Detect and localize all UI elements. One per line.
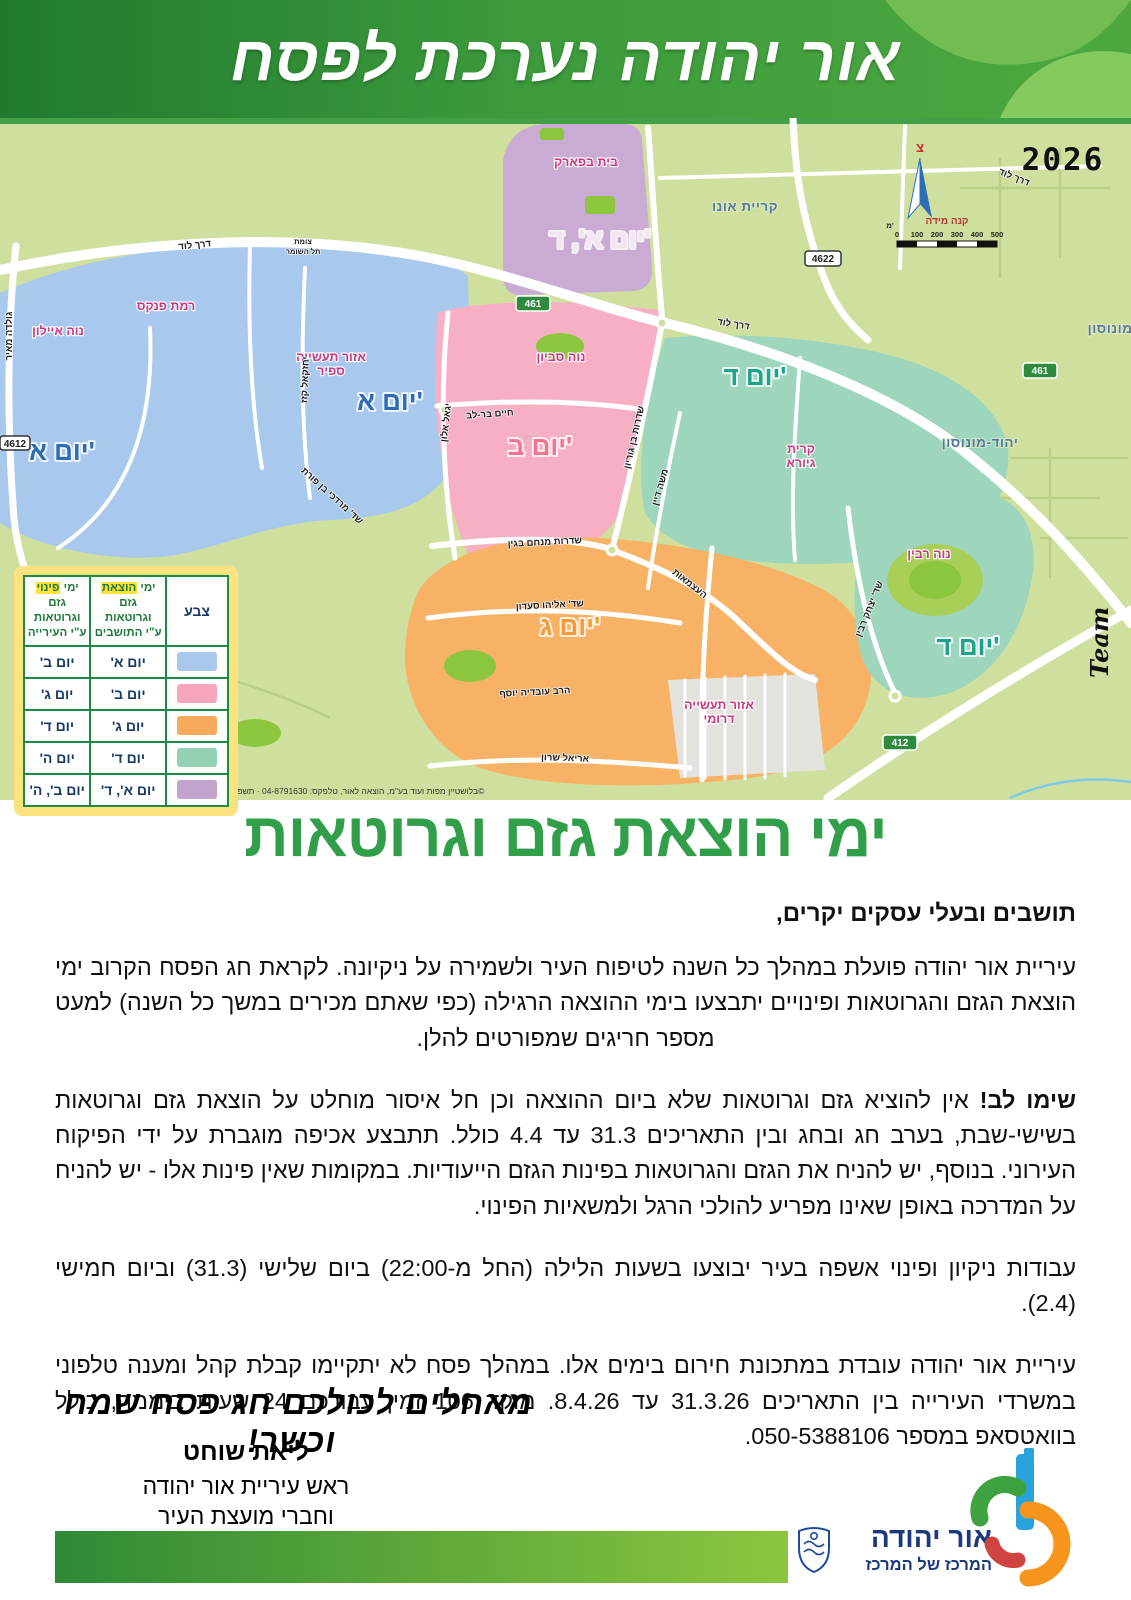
legend-swatch-blue [177, 652, 217, 671]
zone-label-blue-west: יום א' [29, 436, 95, 466]
zone-label-blue-east: יום א' [357, 386, 423, 416]
neighborhood-beit-bapark: בית בפארק [554, 155, 618, 169]
section-title: ימי הוצאת גזם וגרוטאות [0, 800, 1131, 871]
city-map: יום א' יום א' יום א', ד' יום ב' יום ד' י… [0, 118, 1131, 800]
neighborhood-saphir-2: ספיר [317, 364, 345, 378]
svg-text:מ': מ' [886, 221, 893, 230]
street-label-ariel-sharon: אריאל שרון [541, 752, 590, 765]
svg-text:4612: 4612 [4, 439, 27, 450]
legend-header-resident: ימי הוצאת גזם וגרוטאות ע"י התושבים [90, 576, 166, 646]
neighborhood-neve-rabin: נוה רבין [907, 547, 950, 561]
route-badge-461-east: 461 [1023, 363, 1057, 378]
svg-text:300: 300 [951, 230, 964, 239]
city-logo: אור יהודה המרכז של המרכז [796, 1524, 992, 1575]
svg-text:500: 500 [991, 230, 1004, 239]
legend-row: יום א'יום ב' [24, 646, 228, 678]
zone-label-orange: יום ג' [540, 611, 600, 641]
legend-table: צבע ימי הוצאת גזם וגרוטאות ע"י התושבים י… [23, 575, 229, 807]
legend-swatch-teal [177, 748, 217, 767]
legend-header-city: ימי פינוי גזם וגרוטאות ע"י העירייה [24, 576, 90, 646]
legend-header-color: צבע [166, 576, 228, 646]
city-crest-icon [796, 1524, 832, 1574]
body-paragraph-3: עבודות ניקיון ופינוי אשפה בעיר יבוצעו בש… [55, 1251, 1076, 1322]
svg-text:412: 412 [892, 738, 909, 749]
zone-label-purple: יום א', ד' [549, 224, 650, 254]
zone-purple [503, 124, 652, 295]
body-paragraph-1: עיריית אור יהודה פועלת במהלך כל השנה לטי… [55, 950, 1076, 1056]
signature-block: ליאת שוחט ראש עיריית אור יהודה וחברי מוע… [116, 1438, 376, 1532]
map-credit-line: ©בלושטיין מפות ועוד בע"מ, הוצאה לאור, טל… [206, 786, 485, 796]
signer-role-2: וחברי מועצת העיר [116, 1502, 376, 1532]
zone-label-teal-south: יום ד' [937, 631, 1000, 661]
route-badge-4622: 4622 [805, 251, 841, 266]
svg-text:461: 461 [1032, 366, 1049, 377]
page-title: אור יהודה נערכת לפסח [0, 0, 1131, 118]
junction-label-2: תל השומר [286, 247, 321, 256]
footer-green-bar [55, 1531, 788, 1583]
city-label-yehud-south: יהוד-מונוסון [942, 435, 1019, 450]
watermark-text: Team [1085, 607, 1114, 678]
svg-text:461: 461 [525, 299, 542, 310]
svg-text:צ: צ [916, 140, 924, 155]
route-badge-4612: 4612 [0, 436, 30, 450]
legend-row: יום ג'יום ד' [24, 710, 228, 742]
header-banner: אור יהודה נערכת לפסח [0, 0, 1131, 118]
legend-swatch-orange [177, 716, 217, 735]
neighborhood-giora-2: גיורא [786, 456, 815, 470]
legend-row: יום ב'יום ג' [24, 678, 228, 710]
route-badge-412: 412 [883, 735, 917, 750]
svg-text:4622: 4622 [812, 254, 835, 265]
legend-swatch-pink [177, 684, 217, 703]
svg-text:400: 400 [971, 230, 984, 239]
neighborhood-southern-2: דרומי [703, 712, 734, 726]
neighborhood-giora-1: קרית [787, 442, 815, 456]
city-label-yehud-north: יהוד-מונוסון [1088, 321, 1131, 336]
zone-label-pink: יום ב' [508, 431, 572, 461]
legend-row: יום ד'יום ה' [24, 742, 228, 774]
signer-name: ליאת שוחט [116, 1438, 376, 1467]
neighborhood-southern-1: אזור תעשייה [684, 698, 754, 712]
city-logo-mark-icon [966, 1448, 1074, 1588]
svg-text:0: 0 [895, 230, 899, 239]
neighborhood-neve-ayalon: נוה איילון [32, 324, 84, 338]
poster-page: אור יהודה נערכת לפסח [0, 0, 1131, 1600]
zone-label-teal-north: יום ד' [724, 361, 787, 391]
route-badge-461-west: 461 [516, 296, 550, 311]
attention-lead: שימו לב! [980, 1087, 1076, 1113]
map-legend: צבע ימי הוצאת גזם וגרוטאות ע"י התושבים י… [14, 566, 238, 816]
svg-text:100: 100 [911, 230, 924, 239]
neighborhood-neve-savyon: נוה סביון [536, 350, 585, 364]
city-label-kiryat-ono: קריית אונו [712, 199, 778, 214]
signer-role-1: ראש עיריית אור יהודה [116, 1472, 376, 1502]
svg-text:200: 200 [931, 230, 944, 239]
year-label: 2026 [1022, 142, 1105, 178]
street-label-kazaz: יחזקאל קזז [299, 356, 312, 403]
junction-label-1: צומת [294, 237, 312, 246]
body-paragraph-2: שימו לב! אין להוציא גזם וגרוטאות שלא ביו… [55, 1083, 1076, 1224]
neighborhood-ramat-pinkas: רמת פנקס [137, 299, 196, 313]
street-label-golda: גולדה מאיר [4, 311, 15, 360]
salutation: תושבים ובעלי עסקים יקרים, [55, 900, 1076, 928]
legend-swatch-purple [177, 780, 217, 799]
svg-text:קנה מידה: קנה מידה [926, 216, 969, 227]
